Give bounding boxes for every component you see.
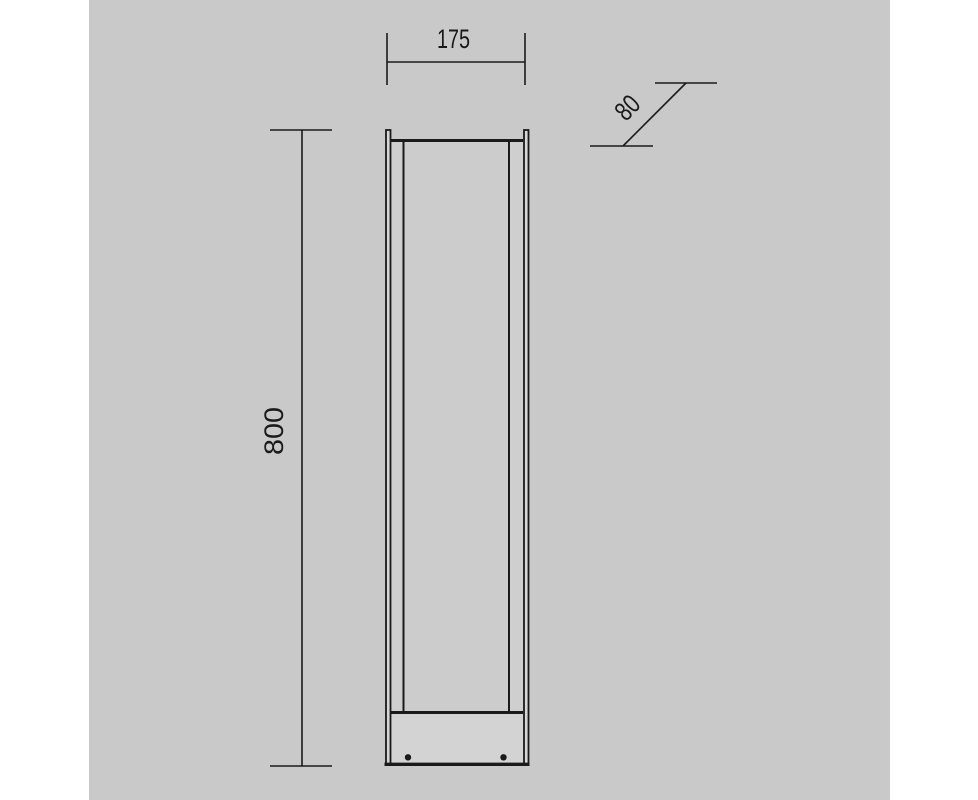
height-dimension-label: 800 bbox=[259, 407, 289, 455]
width-dimension-label: 175 bbox=[437, 24, 470, 54]
mounting-hole-left bbox=[405, 754, 411, 760]
lamp-side-strip-right bbox=[509, 141, 523, 712]
page: { "colors": { "page_margin": "#ffffff", … bbox=[0, 0, 978, 800]
lamp-side-strip-left bbox=[391, 141, 404, 712]
lamp-side-plate-right bbox=[524, 130, 529, 765]
lamp-panel bbox=[403, 141, 509, 712]
lamp-side-plate-left bbox=[386, 130, 391, 765]
lamp-front-view bbox=[385, 130, 530, 765]
mounting-hole-right bbox=[500, 754, 506, 760]
technical-drawing: 175 80 800 bbox=[0, 0, 978, 800]
